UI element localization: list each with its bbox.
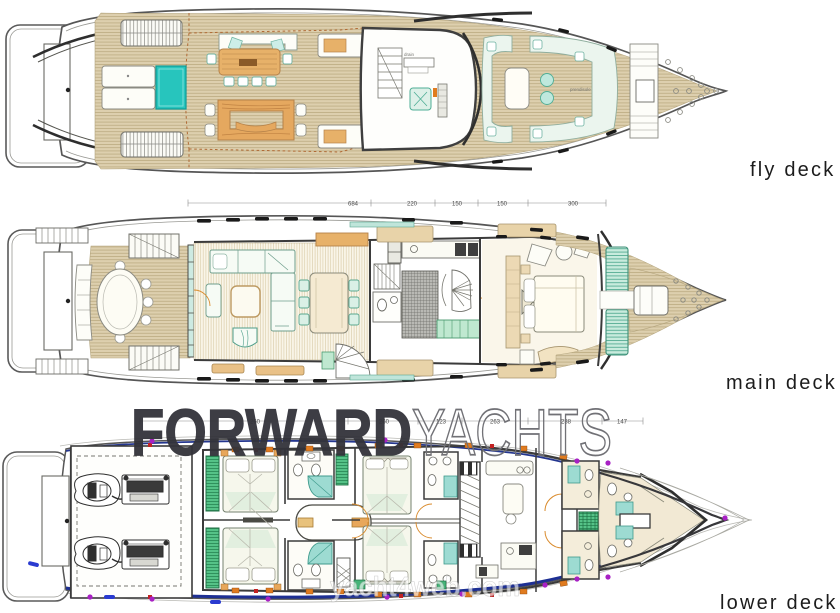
svg-text:150: 150	[452, 202, 463, 208]
svg-text:220: 220	[407, 202, 418, 208]
svg-text:lower deck: lower deck	[720, 592, 838, 613]
svg-text:FORWARD: FORWARD	[131, 395, 412, 469]
svg-text:YACHTS: YACHTS	[412, 395, 612, 469]
svg-text:150: 150	[497, 202, 508, 208]
svg-text:yacht4web.com: yacht4web.com	[330, 571, 520, 602]
svg-text:drain: drain	[404, 52, 415, 57]
svg-text:684: 684	[348, 202, 359, 208]
svg-text:300: 300	[568, 202, 579, 208]
svg-text:prendisole: prendisole	[570, 87, 591, 92]
svg-text:main deck: main deck	[726, 372, 837, 394]
svg-text:147: 147	[617, 420, 628, 426]
svg-text:fly deck: fly deck	[750, 159, 835, 181]
